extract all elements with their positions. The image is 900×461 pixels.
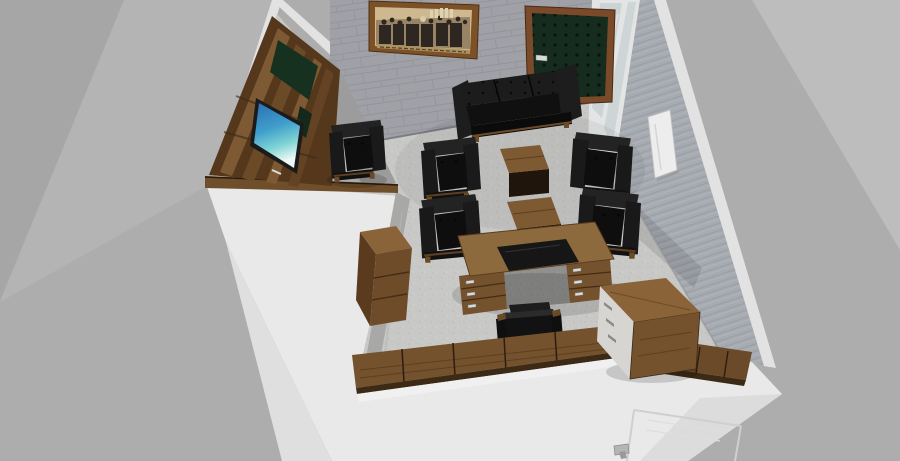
sofa-foot bbox=[564, 122, 569, 128]
desk-pedestal-left bbox=[459, 270, 507, 315]
photo-central-figure bbox=[420, 16, 426, 22]
render-viewport[interactable] bbox=[0, 0, 900, 461]
office-3d-render[interactable] bbox=[0, 0, 900, 461]
bookcase-front bbox=[370, 248, 412, 326]
framed-photograph[interactable] bbox=[369, 1, 479, 59]
door-handle[interactable] bbox=[536, 55, 547, 61]
bookcase-west[interactable] bbox=[356, 226, 412, 326]
coffee-table-base bbox=[509, 169, 549, 197]
side-cabinet-front bbox=[630, 312, 700, 379]
